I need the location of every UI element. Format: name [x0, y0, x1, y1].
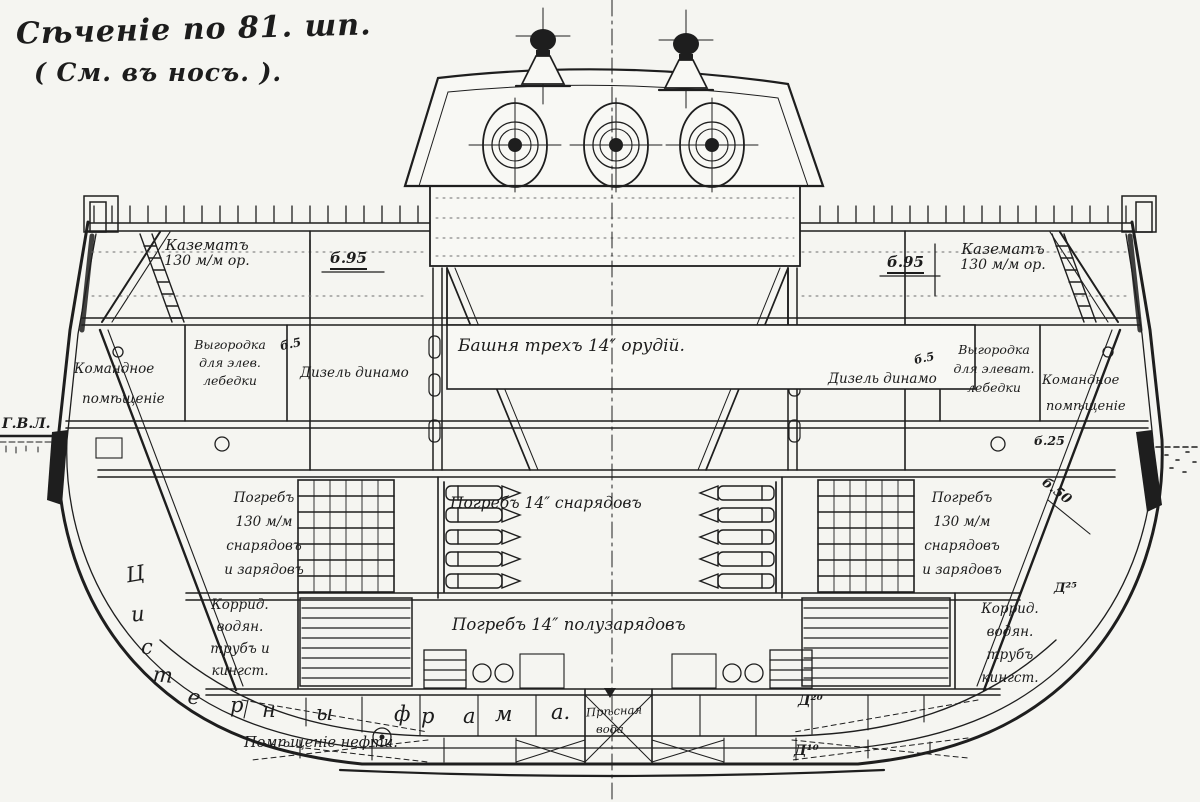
frahm-letter-6: н [262, 699, 276, 721]
winch-enclosure-left-label: Выгородка для элев. лебедки [182, 336, 278, 390]
casemate-left-line2: 130 м/м ор. [142, 254, 272, 269]
corridor-left-label: Коррид. водян. трубъ и кингст. [190, 594, 290, 682]
winch-enclosure-left-line3: лебедки [182, 372, 278, 390]
corridor-left-line2: водян. [190, 616, 290, 638]
fresh-water-line1: Прѣсная [586, 704, 643, 719]
magazine-14in-shells-label: Погребъ 14″ снарядовъ [450, 495, 642, 511]
frahm-letter-3: т [152, 663, 174, 687]
magazine-130mm-left-line2: 130 м/м [214, 510, 314, 534]
frahm-letter-9: р [421, 705, 434, 727]
frahm-letter-5: р [230, 694, 243, 716]
waterline-label: Г.В.Л. [2, 417, 51, 432]
winch-enclosure-left-line2: для элев. [182, 354, 278, 372]
thickness-b95-left: б.95 [330, 251, 367, 270]
magazine-130mm-left-line4: и зарядовъ [214, 558, 314, 582]
slat-rack-right [802, 598, 950, 686]
winch-enclosure-right-line3: лебедки [944, 378, 1044, 397]
corridor-left-line3: трубъ и [190, 638, 290, 660]
oil-compartment-label: Помѣщеніе нефти. [244, 736, 398, 751]
frahm-letter-0: Ц [124, 562, 146, 587]
drawing-title-line2: ( См. въ носъ. ). [34, 60, 282, 86]
slat-rack-left [300, 598, 412, 686]
diesel-dynamo-right: Дизель динамо [828, 372, 937, 386]
casemate-right-line2: 130 м/м ор. [938, 258, 1068, 273]
shell-rack-right-130mm [818, 480, 914, 592]
command-room-left-line1: Командное [74, 362, 154, 376]
corridor-right-line2: водян. [960, 621, 1060, 644]
magazine-130mm-right-line2: 130 м/м [910, 510, 1014, 534]
fresh-water-line2: вода [596, 723, 624, 735]
frahm-letter-11: м [495, 703, 512, 725]
casemate-left-line1: Казематъ [142, 238, 272, 254]
thickness-b95-right: б.95 [887, 255, 924, 274]
winch-enclosure-right-line2: для элеват. [944, 359, 1044, 378]
thickness-b25-right: б.25 [1034, 434, 1065, 447]
corridor-right-label: Коррид. водян. трубъ кингст. [960, 598, 1060, 690]
command-room-left-line2: помѣщеніе [82, 392, 165, 406]
keel-fittings [424, 650, 812, 698]
turret-label: Башня трехъ 14″ орудій. [458, 338, 685, 356]
magazine-130mm-left-label: Погребъ 130 м/м снарядовъ и зарядовъ [214, 486, 314, 582]
magazine-14in-halfcharges-label: Погребъ 14″ полузарядовъ [452, 616, 686, 633]
corridor-left-line4: кингст. [190, 660, 290, 682]
frahm-letter-2: с [141, 636, 153, 658]
casemate-left-label: Казематъ 130 м/м ор. [142, 238, 272, 268]
magazine-130mm-right-line3: снарядовъ [910, 534, 1014, 558]
magazine-130mm-left-line3: снарядовъ [214, 534, 314, 558]
magazine-130mm-right-line1: Погребъ [910, 486, 1014, 510]
thickness-d10: Д¹⁰ [794, 744, 819, 759]
corridor-right-line4: кингст. [960, 667, 1060, 690]
winch-enclosure-right-label: Выгородка для элеват. лебедки [944, 340, 1044, 397]
casemate-right-label: Казематъ 130 м/м ор. [938, 242, 1068, 272]
thickness-d20: Д²⁰ [798, 694, 823, 709]
corridor-right-line1: Коррид. [960, 598, 1060, 621]
turret-group [405, 8, 975, 389]
magazine-130mm-right-line4: и зарядовъ [910, 558, 1014, 582]
frahm-letter-1: и [130, 602, 145, 625]
frahm-letter-12: а. [551, 701, 570, 723]
command-room-right-line1: Командное [1042, 374, 1119, 388]
waterline-marks [0, 436, 1200, 472]
magazine-130mm-right-label: Погребъ 130 м/м снарядовъ и зарядовъ [910, 486, 1014, 582]
command-room-right-line2: помѣщеніе [1046, 400, 1126, 414]
frahm-letter-10: а [463, 705, 476, 727]
thickness-d25-right: Д²⁵ [1054, 582, 1077, 596]
blueprint-page: Сѣченіе по 81. шп. ( См. въ носъ. ). Г.В… [0, 0, 1200, 802]
corridor-right-line3: трубъ [960, 644, 1060, 667]
corridor-left-line1: Коррид. [190, 594, 290, 616]
diesel-dynamo-left: Дизель динамо [300, 366, 409, 380]
shells-14in-right [700, 482, 776, 592]
magazine-130mm-left-line1: Погребъ [214, 486, 314, 510]
frahm-letter-7: ы [316, 702, 333, 724]
casemate-right-line1: Казематъ [938, 242, 1068, 258]
winch-enclosure-right-line1: Выгородка [944, 340, 1044, 359]
winch-enclosure-left-line1: Выгородка [182, 336, 278, 354]
frahm-letter-8: ф [394, 703, 410, 725]
